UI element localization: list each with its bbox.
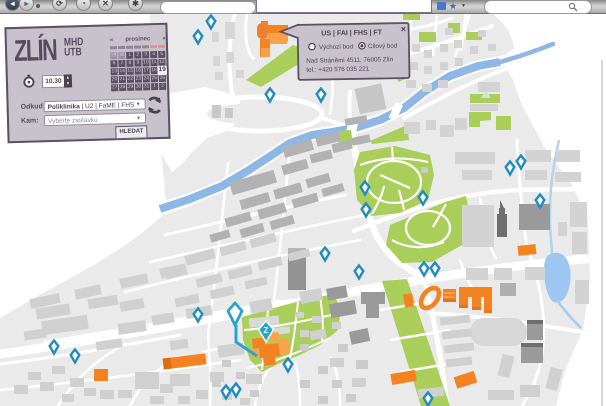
svg-text:US | FAI | FHS | FT: US | FAI | FHS | FT [321, 29, 383, 37]
svg-text:tel.: +420 576 035 221: tel.: +420 576 035 221 [306, 66, 369, 74]
svg-text:Výchozí bod: Výchozí bod [319, 43, 354, 51]
svg-text:Cílový bod: Cílový bod [368, 43, 398, 51]
svg-text:×: × [401, 24, 406, 34]
